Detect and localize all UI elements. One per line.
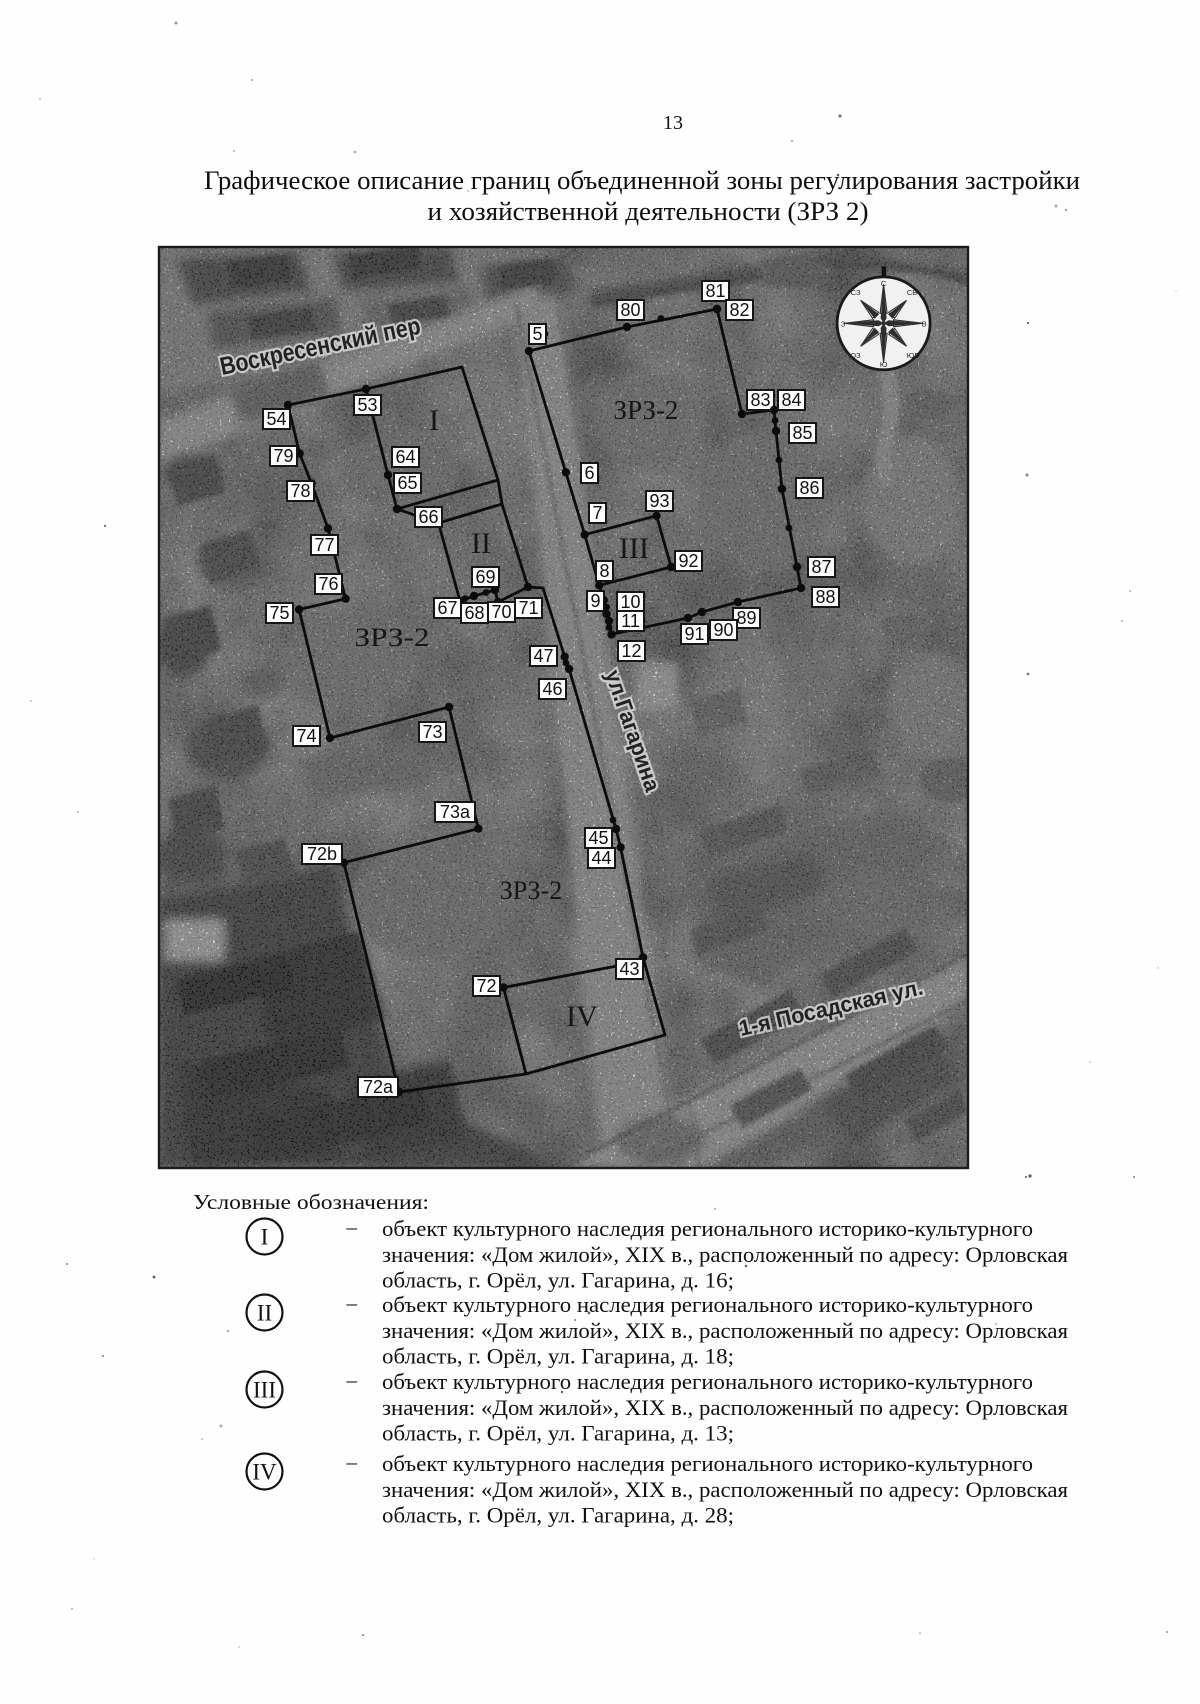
svg-text:70: 70 <box>491 602 511 622</box>
svg-text:II: II <box>257 1301 272 1326</box>
svg-text:Условные обозначения:: Условные обозначения: <box>193 1190 429 1214</box>
svg-text:З: З <box>841 319 846 328</box>
svg-text:объект культурного наследия ре: объект культурного наследия региональног… <box>382 1216 1033 1241</box>
svg-text:область, г. Орёл, ул. Гагарина: область, г. Орёл, ул. Гагарина, д. 28; <box>382 1503 734 1528</box>
svg-text:68: 68 <box>464 603 484 623</box>
svg-text:объект культурного наследия ре: объект культурного наследия региональног… <box>382 1451 1033 1476</box>
svg-text:45: 45 <box>588 828 608 848</box>
svg-text:I: I <box>429 404 439 437</box>
svg-text:12: 12 <box>621 641 641 661</box>
svg-text:47: 47 <box>533 646 553 666</box>
svg-text:71: 71 <box>518 598 538 618</box>
svg-text:область, г. Орёл, ул. Гагарина: область, г. Орёл, ул. Гагарина, д. 16; <box>382 1268 734 1293</box>
svg-text:объект культурного наследия ре: объект культурного наследия региональног… <box>382 1292 1033 1317</box>
svg-text:11: 11 <box>621 611 640 631</box>
svg-text:54: 54 <box>266 409 286 429</box>
svg-text:85: 85 <box>792 423 812 443</box>
svg-text:88: 88 <box>815 587 835 607</box>
svg-text:СВ: СВ <box>907 288 917 297</box>
svg-text:III: III <box>619 532 649 565</box>
svg-text:69: 69 <box>475 567 495 587</box>
svg-text:–: – <box>346 1215 358 1239</box>
svg-text:ЮВ: ЮВ <box>907 351 920 360</box>
svg-text:46: 46 <box>542 679 562 699</box>
svg-text:77: 77 <box>314 535 334 555</box>
svg-text:9: 9 <box>590 591 600 611</box>
svg-text:ЗРЗ-2: ЗРЗ-2 <box>500 876 563 905</box>
svg-text:область, г. Орёл, ул. Гагарина: область, г. Орёл, ул. Гагарина, д. 13; <box>382 1421 734 1446</box>
svg-text:Ю: Ю <box>880 360 888 369</box>
svg-text:С: С <box>881 279 887 288</box>
svg-text:91: 91 <box>684 624 704 644</box>
svg-text:83: 83 <box>750 390 770 410</box>
svg-text:73: 73 <box>422 722 442 742</box>
svg-text:76: 76 <box>318 574 338 594</box>
svg-text:84: 84 <box>781 390 801 410</box>
svg-text:значения: «Дом жилой», XIX в.,: значения: «Дом жилой», XIX в., расположе… <box>382 1242 1068 1267</box>
svg-text:90: 90 <box>713 620 733 640</box>
svg-text:Графическое описание границ об: Графическое описание границ объединенной… <box>204 165 1080 195</box>
svg-text:78: 78 <box>290 481 310 501</box>
svg-text:80: 80 <box>620 300 640 320</box>
svg-text:65: 65 <box>397 473 417 493</box>
svg-text:объект культурного наследия ре: объект культурного наследия региональног… <box>382 1369 1033 1394</box>
svg-text:ЗРЗ-2: ЗРЗ-2 <box>614 395 679 425</box>
svg-text:82: 82 <box>729 300 749 320</box>
svg-text:13: 13 <box>663 112 683 134</box>
svg-text:93: 93 <box>649 491 669 511</box>
svg-text:72a: 72a <box>363 1077 394 1097</box>
svg-text:72: 72 <box>476 976 496 996</box>
svg-text:72b: 72b <box>307 844 337 864</box>
svg-text:86: 86 <box>799 478 819 498</box>
svg-text:значения: «Дом жилой», XIX в.,: значения: «Дом жилой», XIX в., расположе… <box>382 1477 1068 1502</box>
svg-text:IV: IV <box>252 1460 277 1485</box>
svg-text:75: 75 <box>269 603 289 623</box>
svg-text:III: III <box>253 1378 276 1403</box>
svg-text:5: 5 <box>532 324 542 344</box>
svg-text:I: I <box>261 1225 269 1250</box>
svg-text:–: – <box>346 1368 358 1392</box>
svg-text:значения: «Дом жилой», XIX в.,: значения: «Дом жилой», XIX в., расположе… <box>382 1318 1068 1343</box>
svg-text:6: 6 <box>584 463 594 483</box>
svg-text:область, г. Орёл, ул. Гагарина: область, г. Орёл, ул. Гагарина, д. 18; <box>382 1344 734 1369</box>
svg-text:81: 81 <box>705 281 725 301</box>
svg-text:СЗ: СЗ <box>851 288 861 297</box>
svg-text:87: 87 <box>811 557 831 577</box>
svg-text:8: 8 <box>599 561 609 581</box>
svg-text:74: 74 <box>296 726 316 746</box>
svg-text:10: 10 <box>620 592 640 612</box>
svg-text:43: 43 <box>619 959 639 979</box>
svg-text:44: 44 <box>591 848 611 868</box>
svg-text:–: – <box>346 1291 358 1315</box>
svg-text:–: – <box>346 1450 358 1474</box>
svg-text:значения: «Дом жилой», XIX в.,: значения: «Дом жилой», XIX в., расположе… <box>382 1395 1068 1420</box>
svg-text:53: 53 <box>357 395 377 415</box>
svg-text:64: 64 <box>395 447 415 467</box>
svg-text:79: 79 <box>273 446 293 466</box>
svg-text:IV: IV <box>566 1000 598 1033</box>
svg-text:7: 7 <box>592 503 602 523</box>
svg-text:В: В <box>922 319 927 328</box>
svg-text:73a: 73a <box>440 802 471 822</box>
svg-text:89: 89 <box>736 608 756 628</box>
svg-text:ЮЗ: ЮЗ <box>849 351 862 360</box>
svg-text:ЗРЗ-2: ЗРЗ-2 <box>355 623 430 652</box>
svg-text:66: 66 <box>418 507 438 527</box>
svg-text:и хозяйственной деятельности (: и хозяйственной деятельности (ЗРЗ 2) <box>428 196 869 226</box>
svg-text:II: II <box>471 527 491 560</box>
svg-text:92: 92 <box>678 551 698 571</box>
svg-text:67: 67 <box>437 598 457 618</box>
